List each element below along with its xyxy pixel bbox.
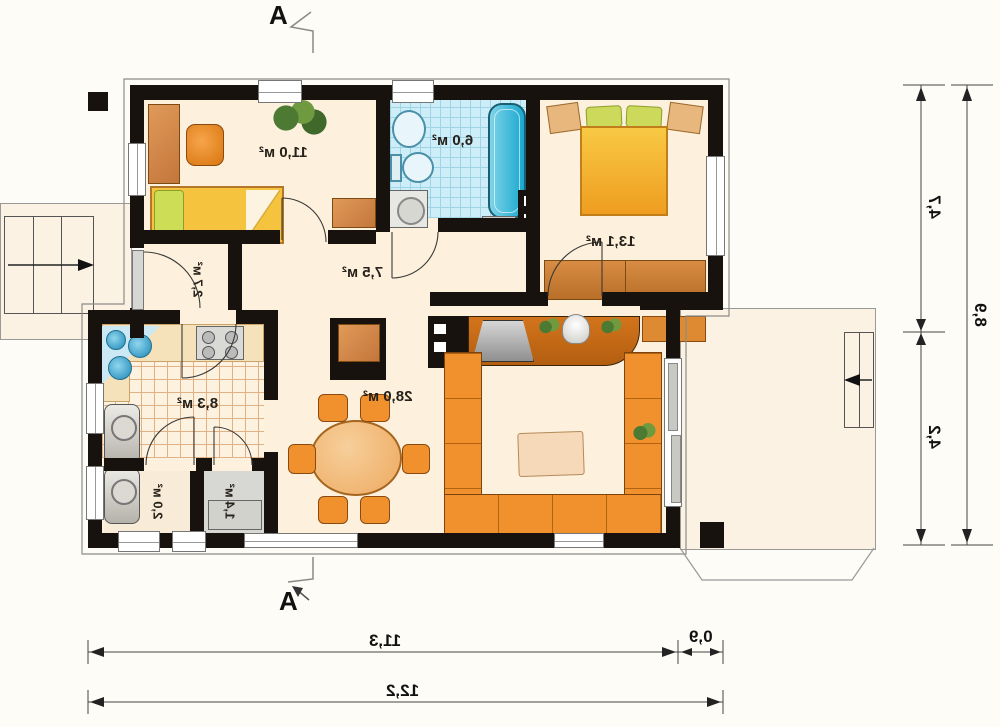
sink-bowl: [106, 330, 126, 350]
corridor-area-label: 7,5 м²: [318, 260, 408, 284]
wall-kitchen-right-b: [264, 452, 278, 533]
section-marker-bottom-label: A: [272, 586, 304, 616]
window-bottom-1: [118, 531, 160, 552]
double-bed: [580, 126, 668, 216]
desk-chair: [186, 124, 224, 166]
floor-plan: 11,0 м² 6,0 м² 13,1 м² 7,5 м² 2,7 м² 8,3…: [0, 0, 1000, 727]
window-top-2: [392, 80, 434, 103]
dim-bottom-total: 12,2: [355, 680, 450, 702]
nightstand-right: [666, 102, 704, 134]
living-area-label: 28,0 м²: [330, 382, 445, 410]
boiler: [104, 468, 140, 524]
coffee-table: [517, 431, 584, 477]
dining-chair: [288, 444, 316, 474]
washing-machine: [388, 190, 428, 228]
wall-bath-bottom-b: [438, 218, 540, 232]
vase: [562, 314, 590, 344]
wall-bottom-d: [358, 533, 556, 548]
bedroom-area-label: 13,1 м²: [558, 228, 663, 254]
wall-left-upper-b: [130, 196, 144, 248]
window-bedroom-right: [706, 156, 725, 256]
wall-smallrooms-mid: [190, 471, 204, 533]
dining-chair: [360, 496, 390, 524]
kitchen-area-label: 8,3 м²: [148, 390, 248, 416]
bathroom-area-label: 6,0 м²: [405, 128, 500, 152]
dining-chair: [402, 444, 430, 474]
porch-steps: [4, 216, 94, 314]
wall-bath-left: [376, 99, 390, 232]
wall-hall-right: [228, 244, 242, 310]
dim-right-upper: 4,7: [912, 180, 956, 234]
chimney-block: [330, 318, 386, 380]
wall-bottom-a: [88, 533, 120, 548]
window-bottom-2: [172, 531, 206, 552]
wall-right-living-a: [666, 310, 680, 360]
wall-smallrooms-top-a: [104, 458, 144, 471]
plant-living: [630, 420, 656, 446]
washing-machine-drum: [397, 197, 425, 225]
sliding-door: [664, 358, 682, 507]
dim-right-total: 8,9: [958, 288, 1000, 342]
window-top-1: [258, 80, 302, 103]
stove: [196, 326, 244, 360]
terrace-pillar: [700, 522, 724, 548]
wall-bath-bottom-a: [376, 218, 390, 232]
wall-room1-bottom-a: [144, 230, 280, 244]
wall-smallrooms-top-c: [252, 458, 264, 471]
window-room1-left: [128, 143, 146, 196]
wall-bath-right: [526, 99, 540, 306]
dining-chair: [318, 496, 348, 524]
room1-dresser: [332, 198, 376, 228]
wall-bedroom-bottom-a: [430, 292, 548, 306]
desk: [148, 104, 180, 184]
sink-bowl: [108, 356, 132, 380]
bathtub-inner: [494, 109, 520, 213]
wall-right-upper-a: [708, 85, 723, 160]
plant-tv-right: [598, 316, 622, 338]
dining-table: [310, 420, 402, 496]
plant-room1: [272, 100, 328, 140]
wall-bottom-c: [204, 533, 244, 548]
nightstand-left: [546, 102, 582, 134]
window-kitchen-left-1: [86, 383, 104, 434]
room1-area-label: 11,0 м²: [233, 140, 333, 164]
boiler: [104, 404, 140, 464]
wall-left-upper-a: [130, 85, 144, 143]
wall-smallrooms-top-b: [196, 458, 212, 471]
window-bottom-3: [554, 533, 604, 548]
wall-left-lower-c: [88, 518, 102, 533]
pantry-area-label: 2,0 м²: [140, 470, 176, 532]
terrace-apron: [680, 548, 874, 580]
toilet-tank: [390, 154, 402, 182]
sofa-base: [444, 494, 662, 534]
closet-area-label: 1,4 м²: [212, 470, 248, 532]
wall-left-lower-b: [88, 432, 102, 468]
wall-bedroom-bottom-b: [602, 292, 708, 306]
toilet-bowl: [402, 152, 434, 183]
dim-right-lower: 4,2: [912, 410, 956, 464]
window-kitchen-left-2: [86, 466, 104, 520]
entry-door-leaf: [132, 250, 144, 310]
wall-bottom-e: [602, 533, 680, 548]
dim-bottom-ext: 0,9: [678, 626, 724, 648]
section-marker-top-label: A: [262, 0, 294, 30]
hall-area-label: 2,7 м²: [178, 250, 218, 308]
section-line-top: [291, 12, 313, 53]
porch-pillar: [88, 92, 108, 111]
window-bottom-long: [244, 533, 358, 548]
terrace-steps: [844, 332, 874, 428]
wall-room1-bottom-b: [328, 230, 376, 244]
wall-kitchen-top-b: [236, 310, 278, 324]
dim-bottom-main: 11,3: [340, 630, 430, 652]
wall-kitchen-right-a: [264, 324, 278, 400]
wall-kitchen-top-a: [88, 310, 180, 324]
plant-tv-left: [536, 316, 560, 338]
